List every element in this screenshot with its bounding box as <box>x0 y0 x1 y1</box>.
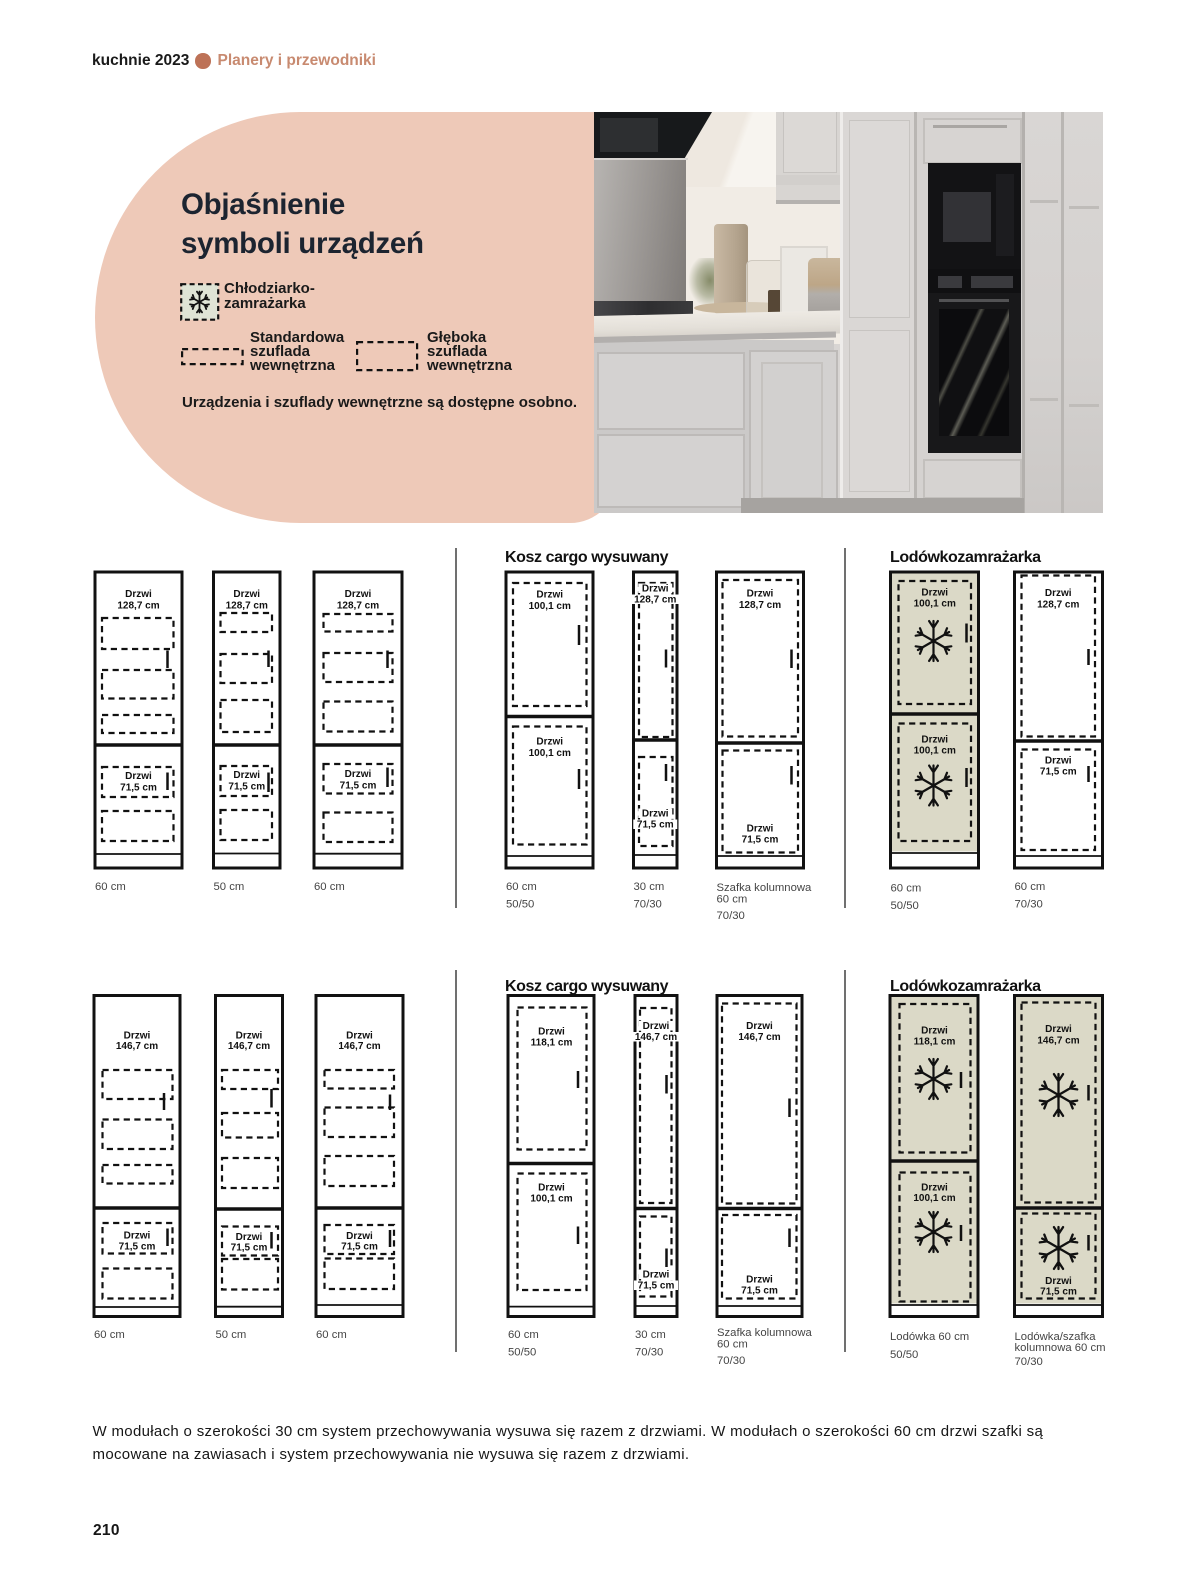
svg-text:Drzwi: Drzwi <box>1045 588 1072 599</box>
svg-text:60 cm: 60 cm <box>316 1329 347 1341</box>
svg-text:60 cm: 60 cm <box>314 881 345 893</box>
svg-text:30 cm: 30 cm <box>634 881 665 893</box>
svg-text:70/30: 70/30 <box>635 1347 663 1359</box>
svg-text:60 cm: 60 cm <box>508 1329 539 1341</box>
svg-text:kolumnowa 60 cm: kolumnowa 60 cm <box>1015 1342 1106 1354</box>
svg-text:146,7 cm: 146,7 cm <box>338 1041 380 1052</box>
svg-text:70/30: 70/30 <box>717 910 745 922</box>
svg-text:128,7 cm: 128,7 cm <box>634 595 676 606</box>
svg-text:Drzwi: Drzwi <box>1045 1024 1072 1035</box>
svg-text:30 cm: 30 cm <box>635 1329 666 1341</box>
svg-text:60 cm: 60 cm <box>891 883 922 895</box>
svg-text:118,1 cm: 118,1 cm <box>531 1038 573 1049</box>
svg-text:Drzwi: Drzwi <box>746 1275 773 1286</box>
svg-text:50/50: 50/50 <box>506 899 534 911</box>
svg-text:146,7 cm: 146,7 cm <box>116 1041 158 1052</box>
svg-text:Szafka kolumnowa: Szafka kolumnowa <box>717 1327 813 1339</box>
svg-text:Drzwi: Drzwi <box>345 589 372 600</box>
svg-text:Kosz cargo wysuwany: Kosz cargo wysuwany <box>505 549 669 566</box>
svg-text:Drzwi: Drzwi <box>642 809 669 820</box>
svg-text:60 cm: 60 cm <box>717 894 748 906</box>
svg-text:60 cm: 60 cm <box>717 1339 748 1351</box>
svg-text:71,5 cm: 71,5 cm <box>119 1242 156 1253</box>
svg-text:71,5 cm: 71,5 cm <box>741 1286 778 1297</box>
svg-text:60 cm: 60 cm <box>94 1329 125 1341</box>
svg-text:Drzwi: Drzwi <box>747 589 774 600</box>
svg-text:Drzwi: Drzwi <box>747 824 774 835</box>
svg-text:Drzwi: Drzwi <box>921 735 948 746</box>
svg-text:70/30: 70/30 <box>1015 1356 1043 1368</box>
svg-text:146,7 cm: 146,7 cm <box>228 1041 270 1052</box>
svg-text:71,5 cm: 71,5 cm <box>340 781 377 792</box>
svg-text:Lodówkozamrażarka: Lodówkozamrażarka <box>890 978 1041 995</box>
svg-text:71,5 cm: 71,5 cm <box>1040 767 1077 778</box>
svg-text:Drzwi: Drzwi <box>921 588 948 599</box>
svg-text:70/30: 70/30 <box>1015 899 1043 911</box>
svg-text:Drzwi: Drzwi <box>536 590 563 601</box>
svg-text:128,7 cm: 128,7 cm <box>337 601 379 612</box>
svg-text:60 cm: 60 cm <box>1015 881 1046 893</box>
svg-text:50/50: 50/50 <box>891 900 919 912</box>
svg-text:Kosz cargo wysuwany: Kosz cargo wysuwany <box>505 978 669 995</box>
svg-text:Lodówkozamrażarka: Lodówkozamrażarka <box>890 549 1041 566</box>
svg-text:Drzwi: Drzwi <box>643 1021 670 1032</box>
svg-text:Drzwi: Drzwi <box>236 1232 263 1243</box>
svg-text:100,1 cm: 100,1 cm <box>529 601 571 612</box>
svg-text:Drzwi: Drzwi <box>643 1270 670 1281</box>
svg-text:71,5 cm: 71,5 cm <box>637 820 674 831</box>
svg-text:Szafka kolumnowa: Szafka kolumnowa <box>717 882 813 894</box>
svg-text:50 cm: 50 cm <box>214 881 245 893</box>
svg-text:146,7 cm: 146,7 cm <box>738 1032 780 1043</box>
svg-text:128,7 cm: 128,7 cm <box>226 601 268 612</box>
svg-text:Drzwi: Drzwi <box>921 1026 948 1037</box>
svg-text:Drzwi: Drzwi <box>236 1031 263 1042</box>
svg-text:71,5 cm: 71,5 cm <box>231 1243 268 1254</box>
svg-text:71,5 cm: 71,5 cm <box>120 783 157 794</box>
svg-text:128,7 cm: 128,7 cm <box>1037 600 1079 611</box>
svg-text:71,5 cm: 71,5 cm <box>228 782 265 793</box>
svg-text:Drzwi: Drzwi <box>642 584 669 595</box>
svg-text:71,5 cm: 71,5 cm <box>1040 1287 1077 1298</box>
svg-text:60 cm: 60 cm <box>506 881 537 893</box>
svg-text:Drzwi: Drzwi <box>125 771 152 782</box>
svg-text:Lodówka 60 cm: Lodówka 60 cm <box>890 1331 969 1343</box>
svg-text:71,5 cm: 71,5 cm <box>742 835 779 846</box>
svg-text:71,5 cm: 71,5 cm <box>341 1242 378 1253</box>
svg-text:50/50: 50/50 <box>890 1349 918 1361</box>
svg-text:Drzwi: Drzwi <box>345 769 372 780</box>
svg-text:Drzwi: Drzwi <box>233 770 260 781</box>
svg-text:Drzwi: Drzwi <box>233 589 260 600</box>
svg-text:50 cm: 50 cm <box>216 1329 247 1341</box>
svg-text:100,1 cm: 100,1 cm <box>913 1193 955 1204</box>
svg-text:100,1 cm: 100,1 cm <box>914 746 956 757</box>
svg-text:128,7 cm: 128,7 cm <box>117 601 159 612</box>
svg-text:70/30: 70/30 <box>634 899 662 911</box>
svg-text:Drzwi: Drzwi <box>124 1031 151 1042</box>
svg-text:Drzwi: Drzwi <box>346 1031 373 1042</box>
svg-text:Drzwi: Drzwi <box>921 1183 948 1194</box>
svg-text:146,7 cm: 146,7 cm <box>1037 1036 1079 1047</box>
svg-text:128,7 cm: 128,7 cm <box>739 600 781 611</box>
svg-text:100,1 cm: 100,1 cm <box>530 1194 572 1205</box>
svg-text:118,1 cm: 118,1 cm <box>914 1037 956 1048</box>
svg-text:60 cm: 60 cm <box>95 881 126 893</box>
svg-text:Drzwi: Drzwi <box>1045 756 1072 767</box>
svg-text:146,7 cm: 146,7 cm <box>635 1032 677 1043</box>
svg-text:Drzwi: Drzwi <box>125 589 152 600</box>
svg-text:Drzwi: Drzwi <box>538 1027 565 1038</box>
svg-text:Drzwi: Drzwi <box>124 1231 151 1242</box>
svg-text:71,5 cm: 71,5 cm <box>638 1281 675 1292</box>
svg-text:Drzwi: Drzwi <box>538 1183 565 1194</box>
svg-text:50/50: 50/50 <box>508 1347 536 1359</box>
svg-text:Drzwi: Drzwi <box>1045 1276 1072 1287</box>
svg-text:100,1 cm: 100,1 cm <box>914 599 956 610</box>
svg-text:Drzwi: Drzwi <box>346 1231 373 1242</box>
svg-text:Drzwi: Drzwi <box>746 1021 773 1032</box>
svg-text:Drzwi: Drzwi <box>536 737 563 748</box>
svg-text:100,1 cm: 100,1 cm <box>529 748 571 759</box>
svg-text:70/30: 70/30 <box>717 1355 745 1367</box>
